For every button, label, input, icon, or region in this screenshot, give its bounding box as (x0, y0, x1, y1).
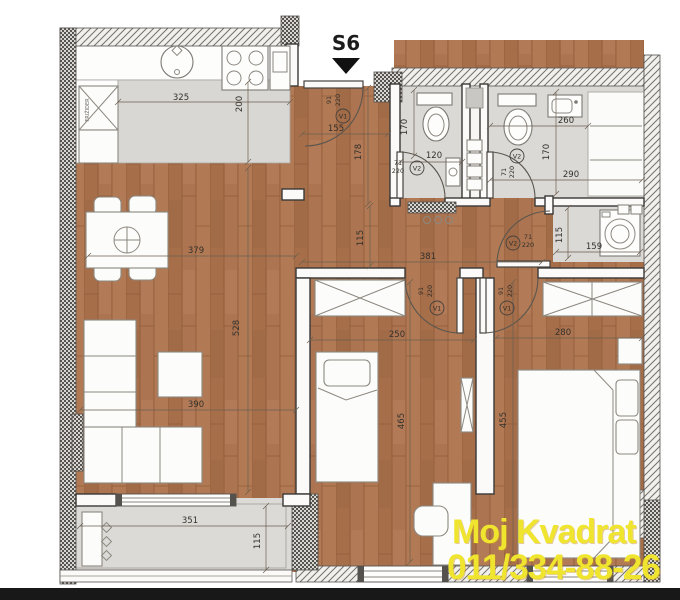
dim-kitchen-width: 325 (173, 93, 189, 103)
coffee-table (158, 352, 202, 397)
door-tag: V2 (509, 240, 518, 248)
shelf-box (618, 205, 629, 214)
door-tag: V1 (339, 113, 348, 121)
dim-terrace-width: 351 (182, 516, 198, 526)
wall-living-terrace-a (76, 494, 116, 506)
kitchen-zone-floor (118, 80, 290, 163)
unit-label: S6 (332, 31, 360, 55)
lower-cabinet (79, 130, 118, 163)
dim-bath2-top-width: 260 (558, 116, 574, 126)
door-size: 220 (506, 285, 514, 297)
dim-living-width2: 390 (188, 400, 204, 410)
dim-corridor-width: 381 (420, 252, 436, 262)
dim-bath2-depth: 170 (542, 144, 552, 160)
wall-corridor-b (460, 268, 483, 278)
window-bedroom1 (358, 566, 448, 582)
fridge-note: FRIŽIDER (83, 98, 91, 122)
sofa-vertical (84, 320, 136, 428)
radiator-living (72, 414, 83, 471)
dim-bedroom1-depth: 465 (397, 413, 407, 429)
door-size: 220 (334, 94, 342, 106)
door-tag: V2 (413, 165, 422, 173)
desk-chair (414, 506, 448, 536)
shelf-box (631, 205, 642, 214)
dim-kitchen-depth: 200 (235, 96, 245, 112)
bottom-band (0, 588, 680, 600)
sink-icon (161, 46, 193, 78)
dim-laundry-width: 159 (586, 242, 602, 252)
door-size: 71 (524, 233, 532, 241)
wall-bath-bottom-a (390, 198, 400, 206)
shoe-cabinet (408, 202, 456, 213)
wall-kitchen-pier (282, 189, 304, 200)
washbasin-icon (548, 95, 582, 117)
window-living (116, 494, 236, 506)
shower-area (588, 92, 644, 196)
dim-bedroom2-depth: 455 (499, 412, 509, 428)
dim-hall-entry-depth: 178 (354, 144, 364, 160)
dim-living-depth: 528 (232, 320, 242, 336)
toilet-tank (417, 93, 452, 105)
wall-living-bedroom1 (296, 278, 310, 494)
wall-corridor-c (538, 268, 644, 278)
shaft-top (466, 88, 483, 108)
floor-plan-page: 325 200 FRIŽIDER 155 178 115 381 170 120… (0, 0, 680, 600)
dim-hall-entry-width: 155 (328, 124, 344, 134)
pillow-single (324, 360, 370, 386)
laundry-room (600, 205, 642, 256)
washbasin-tap (574, 100, 578, 104)
dim-bedroom1-width: 250 (389, 330, 405, 340)
toilet-tank-2 (498, 94, 536, 106)
wall-corridor-a (296, 268, 405, 278)
entrance-column-left (281, 16, 299, 46)
shaft-shelf (467, 179, 482, 190)
door-size: 91 (417, 287, 425, 295)
door-size: 91 (497, 287, 505, 295)
dim-terrace-depth: 115 (253, 533, 263, 549)
dim-bedroom2-width: 280 (555, 328, 571, 338)
door-size: 220 (392, 167, 404, 175)
pillow (616, 380, 638, 416)
door-size: 71 (500, 168, 508, 176)
door-tag: V2 (513, 153, 522, 161)
door-size: 220 (508, 166, 516, 178)
watermark-brand: Moj Kvadrat (452, 513, 636, 552)
door-tag: V1 (503, 305, 512, 313)
shaft-shelf (467, 140, 482, 151)
dim-living-width: 379 (188, 246, 204, 256)
dim-laundry-depth: 115 (555, 227, 565, 243)
wall-left (60, 28, 76, 584)
pillow (616, 420, 638, 454)
terrace-bench (82, 512, 102, 566)
wall-top-kitchen (60, 28, 286, 46)
shaft-shelf (467, 153, 482, 164)
nightstand (618, 338, 642, 364)
watermark-phone: 011/334-88-26 (447, 548, 660, 588)
door-size: 220 (522, 241, 534, 249)
dim-bath1-width: 120 (426, 151, 442, 161)
door-size: 220 (426, 285, 434, 297)
floor-plan-drawing: 325 200 FRIŽIDER 155 178 115 381 170 120… (0, 0, 680, 600)
dim-bath1-depth: 170 (400, 119, 410, 135)
door-size: 91 (325, 96, 333, 104)
sofa-horizontal (84, 427, 202, 483)
wall-living-terrace-b (283, 494, 310, 506)
door-size: 71 (394, 159, 402, 167)
wall-top-bathrooms (392, 68, 644, 86)
shaft-shelf (467, 166, 482, 177)
door-tag: V1 (433, 305, 442, 313)
dim-hall-depth: 115 (356, 230, 366, 246)
dim-bath2-width: 290 (563, 170, 579, 180)
